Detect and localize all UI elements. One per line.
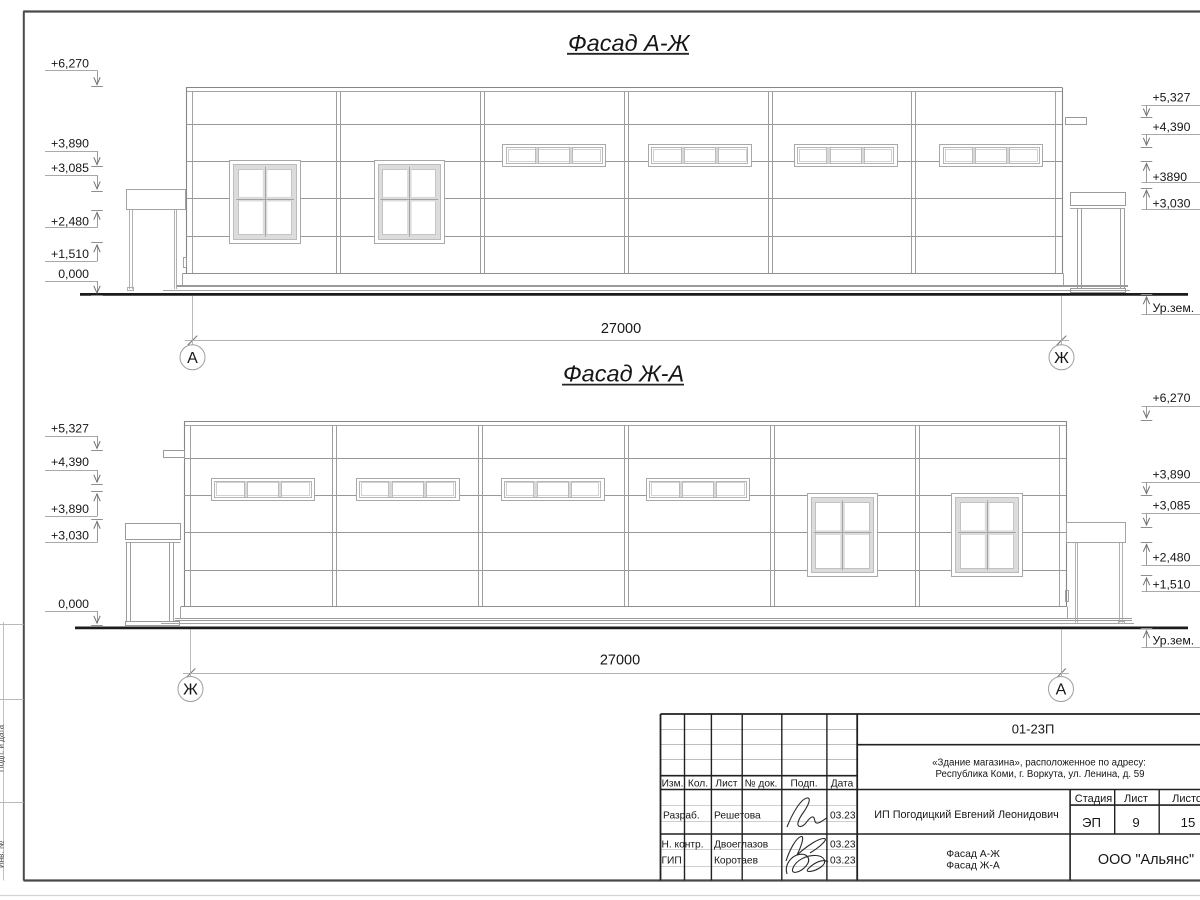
svg-text:03.23: 03.23: [830, 840, 856, 851]
svg-text:Разраб.: Разраб.: [663, 810, 700, 822]
svg-text:+3,085: +3,085: [1153, 499, 1191, 513]
svg-text:Ж: Ж: [1054, 350, 1069, 367]
svg-text:Ур.зем.: Ур.зем.: [1153, 301, 1195, 315]
svg-text:Дата: Дата: [831, 779, 854, 790]
svg-text:+4,390: +4,390: [1153, 120, 1191, 134]
svg-text:Ур.зем.: Ур.зем.: [1153, 634, 1195, 648]
svg-text:27000: 27000: [601, 321, 641, 337]
svg-text:Кол.: Кол.: [688, 779, 708, 790]
svg-text:Республика Коми, г. Воркута, у: Республика Коми, г. Воркута, ул. Ленина,…: [935, 769, 1144, 780]
svg-text:+6,270: +6,270: [51, 57, 89, 71]
svg-text:Листов: Листов: [1172, 793, 1200, 805]
svg-text:+1,510: +1,510: [51, 247, 89, 261]
svg-text:+3890: +3890: [1153, 170, 1188, 184]
svg-text:+3,890: +3,890: [51, 137, 89, 151]
svg-text:+4,390: +4,390: [51, 455, 89, 469]
svg-text:+3,085: +3,085: [51, 161, 89, 175]
svg-text:+3,890: +3,890: [51, 502, 89, 516]
svg-text:+3,030: +3,030: [1153, 197, 1191, 211]
svg-text:Решетова: Решетова: [714, 811, 761, 822]
svg-text:ООО "Альянс": ООО "Альянс": [1098, 852, 1194, 868]
svg-text:Фасад А-Ж: Фасад А-Ж: [568, 30, 691, 56]
svg-text:А: А: [187, 350, 198, 367]
svg-text:Ж: Ж: [183, 682, 198, 699]
svg-text:№ док.: № док.: [745, 779, 778, 790]
svg-text:+3,890: +3,890: [1153, 468, 1191, 482]
svg-text:9: 9: [1132, 815, 1139, 830]
svg-text:+6,270: +6,270: [1153, 391, 1191, 405]
svg-text:+5,327: +5,327: [51, 422, 89, 436]
svg-text:ЭП: ЭП: [1082, 815, 1101, 830]
svg-text:Двоеглазов: Двоеглазов: [714, 840, 768, 851]
svg-text:«Здание магазина», расположенн: «Здание магазина», расположенное по адре…: [932, 758, 1146, 769]
svg-text:Изм.: Изм.: [662, 779, 684, 790]
svg-text:Фасад А-Ж: Фасад А-Ж: [946, 849, 1000, 860]
svg-text:15: 15: [1181, 815, 1196, 830]
svg-text:Подп.: Подп.: [790, 779, 817, 790]
svg-text:0,000: 0,000: [58, 267, 89, 281]
svg-text:+2,480: +2,480: [51, 215, 89, 229]
svg-text:Лист: Лист: [1124, 793, 1148, 805]
svg-text:ГИП: ГИП: [662, 856, 682, 867]
svg-text:03.23: 03.23: [830, 811, 856, 822]
svg-text:Лист: Лист: [715, 779, 737, 790]
svg-text:+2,480: +2,480: [1153, 551, 1191, 565]
svg-text:Н. контр.: Н. контр.: [662, 840, 704, 851]
svg-text:27000: 27000: [600, 653, 640, 669]
svg-text:Коротаев: Коротаев: [714, 856, 758, 867]
svg-text:Стадия: Стадия: [1075, 793, 1113, 805]
svg-text:+3,030: +3,030: [51, 529, 89, 543]
svg-text:Фасад Ж-А: Фасад Ж-А: [563, 361, 684, 387]
svg-text:+5,327: +5,327: [1153, 91, 1191, 105]
svg-text:01-23П: 01-23П: [1012, 722, 1055, 737]
svg-text:+1,510: +1,510: [1153, 578, 1191, 592]
svg-text:ИП Погодицкий Евгений Леонидов: ИП Погодицкий Евгений Леонидович: [874, 809, 1059, 821]
svg-text:0,000: 0,000: [58, 597, 89, 611]
svg-text:03.23: 03.23: [830, 856, 856, 867]
svg-text:А: А: [1056, 682, 1067, 699]
svg-text:Фасад Ж-А: Фасад Ж-А: [946, 860, 1000, 871]
